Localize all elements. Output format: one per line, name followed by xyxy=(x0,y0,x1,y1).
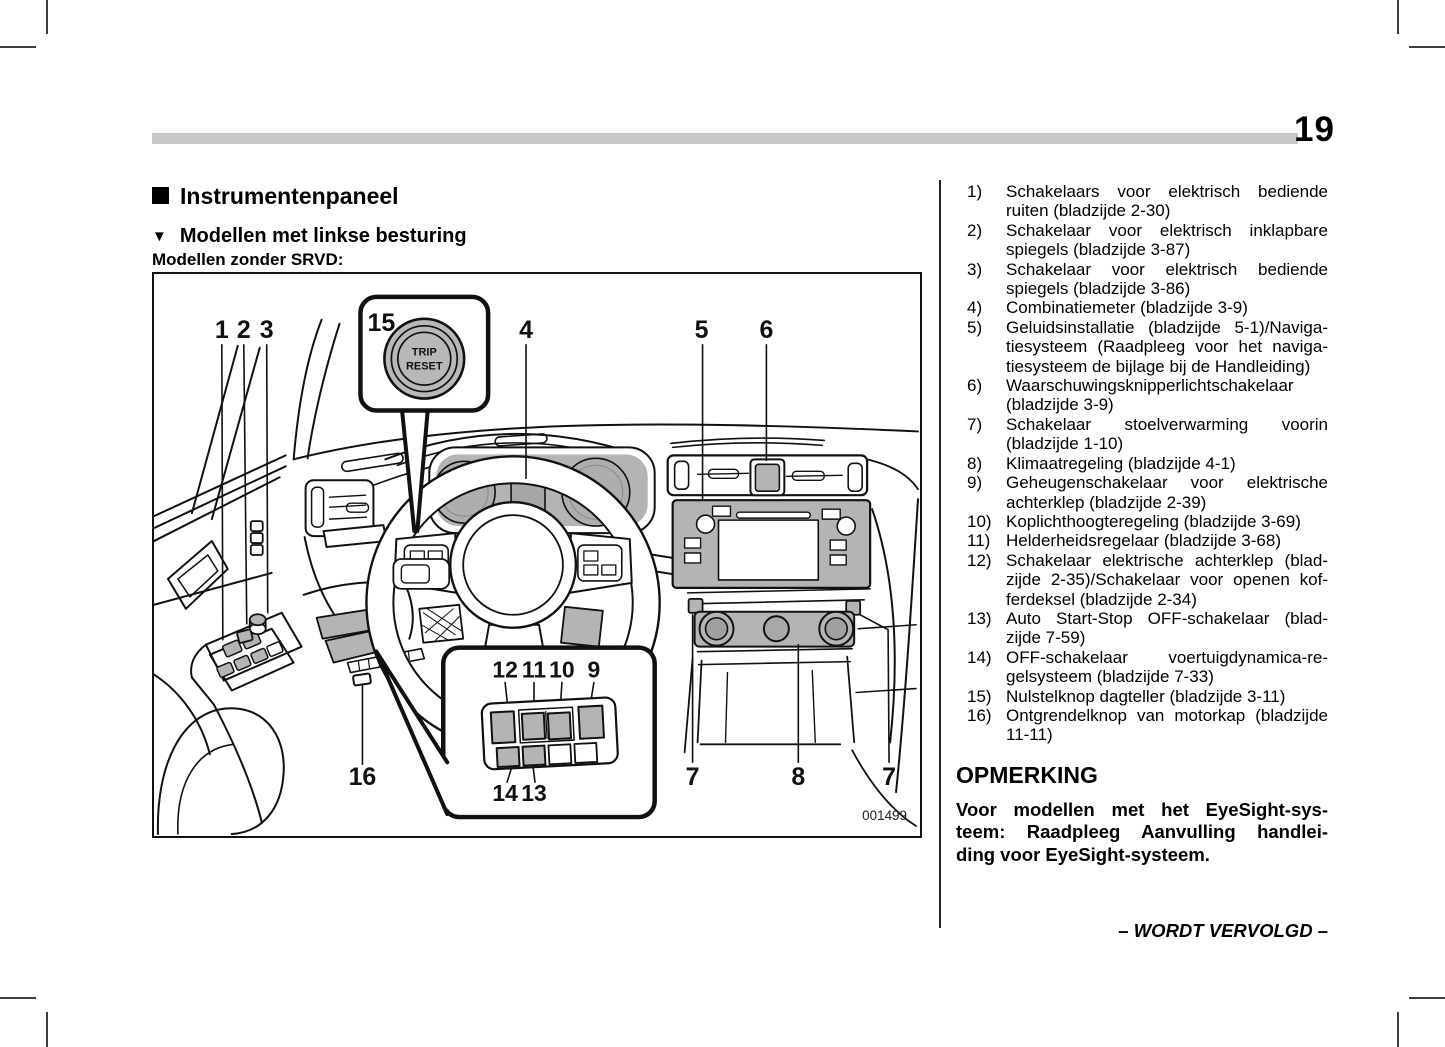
legend-item-text: Combinatiemeter (bladzijde 3-9) xyxy=(1006,298,1328,317)
legend-item-text: Geheugenschakelaar voor elektrischeachte… xyxy=(1006,473,1328,512)
manual-page: 19 Instrumentenpaneel ▼ Modellen met lin… xyxy=(0,0,1445,1047)
legend-item: 11) Helderheidsregelaar (bladzijde 3-68) xyxy=(967,531,1328,550)
dashboard-diagram: 1 2 3 4 5 6 7 8 7 16 15 TRIP xyxy=(154,274,920,836)
callout-label-15: 15 xyxy=(368,309,396,337)
callout-label-7-left: 7 xyxy=(686,763,700,791)
legend-item-number: 12) xyxy=(967,551,1006,609)
legend-item: 15) Nulstelknop dagteller (bladzijde 3-1… xyxy=(967,687,1328,706)
legend-item: 10) Koplichthoogteregeling (bladzijde 3-… xyxy=(967,512,1328,531)
text-line: Nulstelknop dagteller (bladzijde 3-11) xyxy=(1006,687,1328,706)
legend-item-number: 16) xyxy=(967,706,1006,745)
column-divider xyxy=(939,180,941,928)
legend-item-text: Schakelaar elektrische achterklep (blad-… xyxy=(1006,551,1328,609)
text-line: tiesysteem de bijlage bij de Handleiding… xyxy=(1006,357,1328,376)
text-line: teem: Raadpleeg Aanvulling handlei- xyxy=(956,821,1328,843)
legend-item-number: 8) xyxy=(967,454,1006,473)
text-line: ding voor EyeSight-systeem. xyxy=(956,844,1328,866)
text-line: Voor modellen met het EyeSight-sys- xyxy=(956,799,1328,821)
text-line: OFF-schakelaar voertuigdynamica-re- xyxy=(1006,648,1328,667)
legend-list: 1) Schakelaars voor elektrisch bediender… xyxy=(967,182,1328,745)
callout-label-6: 6 xyxy=(759,316,773,344)
legend-item-number: 2) xyxy=(967,221,1006,260)
text-line: Combinatiemeter (bladzijde 3-9) xyxy=(1006,298,1328,317)
legend-item-number: 15) xyxy=(967,687,1006,706)
hood-release-latch xyxy=(353,673,371,685)
legend-item-text: Koplichthoogteregeling (bladzijde 3-69) xyxy=(1006,512,1328,531)
text-line: ruiten (bladzijde 2-30) xyxy=(1006,201,1328,220)
legend-item-text: Schakelaar voor elektrisch inklapbarespi… xyxy=(1006,221,1328,260)
callout-label-2: 2 xyxy=(237,316,251,344)
trip-label: TRIP xyxy=(412,347,437,359)
legend-item: 6) Waarschuwingsknipperlichtschakelaar(b… xyxy=(967,376,1328,415)
legend-item-text: Waarschuwingsknipperlichtschakelaar(blad… xyxy=(1006,376,1328,415)
note-section: OPMERKING Voor modellen met het EyeSight… xyxy=(956,762,1328,866)
legend-item: 14) OFF-schakelaar voertuigdynamica-re-g… xyxy=(967,648,1328,687)
crop-mark xyxy=(0,46,36,48)
text-line: Schakelaars voor elektrisch bediende xyxy=(1006,182,1328,201)
legend-item-number: 10) xyxy=(967,512,1006,531)
legend-item-number: 14) xyxy=(967,648,1006,687)
section-marker-icon xyxy=(152,187,169,204)
seat-heater-switch-left xyxy=(689,599,703,613)
variant-label: Modellen zonder SRVD: xyxy=(152,250,343,270)
text-line: Klimaatregeling (bladzijde 4-1) xyxy=(1006,454,1328,473)
legend-item: 8) Klimaatregeling (bladzijde 4-1) xyxy=(967,454,1328,473)
continuation-label: – WORDT VERVOLGD – xyxy=(956,920,1328,942)
note-body: Voor modellen met het EyeSight-sys-teem:… xyxy=(956,799,1328,866)
legend-item-text: Nulstelknop dagteller (bladzijde 3-11) xyxy=(1006,687,1328,706)
triangle-marker-icon: ▼ xyxy=(152,229,167,244)
legend-item: 4) Combinatiemeter (bladzijde 3-9) xyxy=(967,298,1328,317)
legend-item: 13) Auto Start-Stop OFF-schakelaar (blad… xyxy=(967,609,1328,648)
text-line: (bladzijde 1-10) xyxy=(1006,434,1328,453)
text-line: zijde 2-35)/Schakelaar voor openen kof- xyxy=(1006,570,1328,589)
callout-label-14: 14 xyxy=(492,780,518,806)
callout-label-3: 3 xyxy=(260,316,274,344)
callout-label-11: 11 xyxy=(522,657,546,683)
crop-mark xyxy=(0,997,36,999)
text-line: spiegels (bladzijde 3-87) xyxy=(1006,240,1328,259)
crop-mark xyxy=(1409,997,1445,999)
legend-item: 9) Geheugenschakelaar voor elektrischeac… xyxy=(967,473,1328,512)
legend-item-number: 3) xyxy=(967,260,1006,299)
trip-reset-button: TRIP RESET xyxy=(384,319,464,399)
crop-mark xyxy=(1397,1012,1399,1047)
callout-label-9: 9 xyxy=(587,657,600,683)
legend-item-number: 5) xyxy=(967,318,1006,376)
legend-item-text: Schakelaars voor elektrisch bedienderuit… xyxy=(1006,182,1328,221)
text-line: achterklep (bladzijde 2-39) xyxy=(1006,493,1328,512)
legend-item-text: Helderheidsregelaar (bladzijde 3-68) xyxy=(1006,531,1328,550)
legend-item-number: 11) xyxy=(967,531,1006,550)
seat-outline xyxy=(158,708,284,834)
legend-item-number: 1) xyxy=(967,182,1006,221)
text-line: Koplichthoogteregeling (bladzijde 3-69) xyxy=(1006,512,1328,531)
legend-item-number: 6) xyxy=(967,376,1006,415)
hazard-switch xyxy=(755,464,779,491)
text-line: ferdeksel (bladzijde 2-34) xyxy=(1006,590,1328,609)
text-line: Helderheidsregelaar (bladzijde 3-68) xyxy=(1006,531,1328,550)
crop-mark xyxy=(46,1012,48,1047)
text-line: Geluidsinstallatie (bladzijde 5-1)/Navig… xyxy=(1006,318,1328,337)
text-line: 11-11) xyxy=(1006,725,1328,744)
text-line: Schakelaar stoelverwarming voorin xyxy=(1006,415,1328,434)
callout-label-5: 5 xyxy=(695,316,709,344)
legend-item-text: Klimaatregeling (bladzijde 4-1) xyxy=(1006,454,1328,473)
legend-item-number: 9) xyxy=(967,473,1006,512)
audio-display xyxy=(719,520,819,580)
subsection-title: Modellen met linkse besturing xyxy=(180,225,467,248)
subsection-heading: ▼ Modellen met linkse besturing xyxy=(152,225,467,248)
callout-label-12: 12 xyxy=(492,657,517,683)
steering-hub xyxy=(450,502,576,628)
text-line: spiegels (bladzijde 3-86) xyxy=(1006,279,1328,298)
callout-label-1: 1 xyxy=(215,316,229,344)
legend-item-number: 7) xyxy=(967,415,1006,454)
callout-label-8: 8 xyxy=(791,763,805,791)
legend-item-number: 13) xyxy=(967,609,1006,648)
legend-item-text: OFF-schakelaar voertuigdynamica-re-gelsy… xyxy=(1006,648,1328,687)
legend-item-number: 4) xyxy=(967,298,1006,317)
crop-mark xyxy=(1409,46,1445,48)
legend-item: 2) Schakelaar voor elektrisch inklapbare… xyxy=(967,221,1328,260)
text-line: tiesysteem (Raadpleeg voor het naviga- xyxy=(1006,337,1328,356)
figure-code: 001499 xyxy=(862,808,907,823)
section-heading: Instrumentenpaneel xyxy=(152,183,399,210)
reset-label: RESET xyxy=(406,361,443,373)
text-line: gelsysteem (bladzijde 7-33) xyxy=(1006,667,1328,686)
text-line: zijde 7-59) xyxy=(1006,628,1328,647)
figure-box: 1 2 3 4 5 6 7 8 7 16 15 TRIP xyxy=(152,272,922,838)
legend-item: 3) Schakelaar voor elektrisch bediendesp… xyxy=(967,260,1328,299)
text-line: Geheugenschakelaar voor elektrische xyxy=(1006,473,1328,492)
center-stack xyxy=(668,455,870,752)
legend-item: 7) Schakelaar stoelverwarming voorin(bla… xyxy=(967,415,1328,454)
crop-mark xyxy=(1397,0,1399,34)
note-title: OPMERKING xyxy=(956,762,1328,789)
text-line: Schakelaar voor elektrisch inklapbare xyxy=(1006,221,1328,240)
section-title: Instrumentenpaneel xyxy=(180,183,399,210)
legend-item-text: Schakelaar voor elektrisch bediendespieg… xyxy=(1006,260,1328,299)
callout-label-13: 13 xyxy=(521,780,546,806)
text-line: Auto Start-Stop OFF-schakelaar (blad- xyxy=(1006,609,1328,628)
legend-item: 16) Ontgrendelknop van motorkap (bladzij… xyxy=(967,706,1328,745)
legend-item: 12) Schakelaar elektrische achterklep (b… xyxy=(967,551,1328,609)
text-line: Schakelaar elektrische achterklep (blad- xyxy=(1006,551,1328,570)
text-line: Ontgrendelknop van motorkap (bladzijde xyxy=(1006,706,1328,725)
crop-mark xyxy=(46,0,48,34)
legend-item: 5) Geluidsinstallatie (bladzijde 5-1)/Na… xyxy=(967,318,1328,376)
switch-panel-callout-bubble: 12 11 10 9 14 13 xyxy=(376,648,654,817)
left-stalk xyxy=(324,525,387,547)
legend-item-text: Ontgrendelknop van motorkap (bladzijde11… xyxy=(1006,706,1328,745)
detail-switch-panel xyxy=(481,697,618,770)
callout-label-4: 4 xyxy=(519,316,533,344)
header-rule xyxy=(152,133,1298,144)
text-line: Schakelaar voor elektrisch bediende xyxy=(1006,260,1328,279)
callout-label-10: 10 xyxy=(549,657,574,683)
legend-item: 1) Schakelaars voor elektrisch bediender… xyxy=(967,182,1328,221)
callout-label-16: 16 xyxy=(349,763,377,791)
climate-control xyxy=(695,612,855,647)
audio-unit xyxy=(673,500,870,588)
legend-item-text: Geluidsinstallatie (bladzijde 5-1)/Navig… xyxy=(1006,318,1328,376)
text-line: Waarschuwingsknipperlichtschakelaar xyxy=(1006,376,1328,395)
text-line: (bladzijde 3-9) xyxy=(1006,395,1328,414)
callout-label-7-right: 7 xyxy=(882,763,896,791)
legend-item-text: Schakelaar stoelverwarming voorin(bladzi… xyxy=(1006,415,1328,454)
page-number: 19 xyxy=(1294,110,1335,150)
legend-item-text: Auto Start-Stop OFF-schakelaar (blad-zij… xyxy=(1006,609,1328,648)
